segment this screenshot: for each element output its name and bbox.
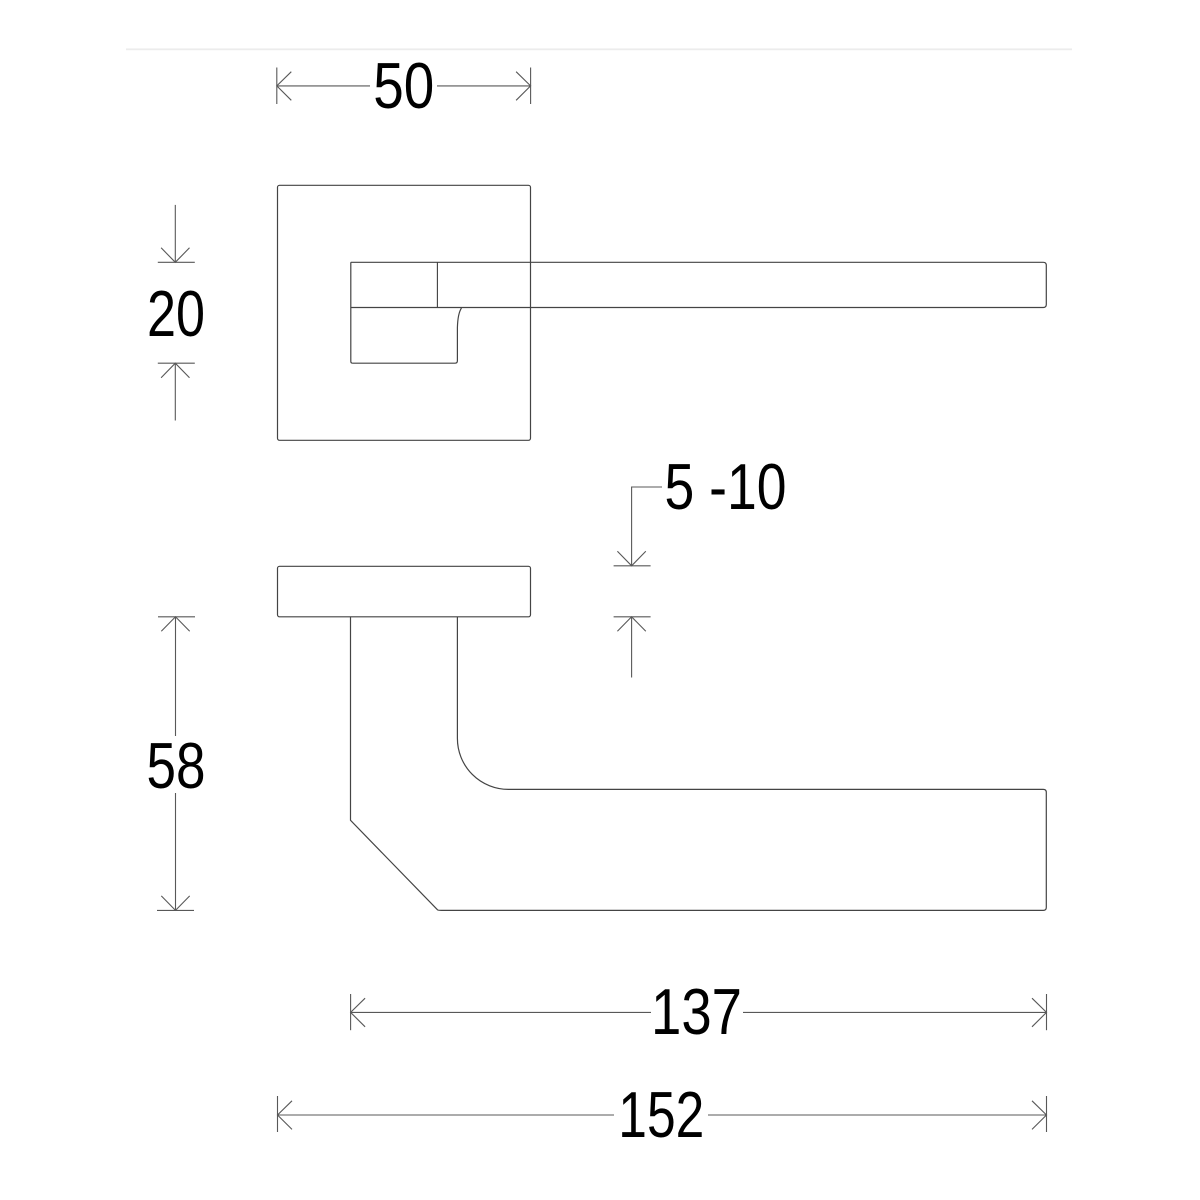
svg-text:137: 137 <box>651 975 742 1048</box>
svg-text:20: 20 <box>147 277 205 350</box>
svg-text:50: 50 <box>373 49 434 122</box>
svg-text:152: 152 <box>618 1078 704 1151</box>
svg-text:58: 58 <box>147 729 206 802</box>
svg-text:5 -10: 5 -10 <box>665 450 787 523</box>
